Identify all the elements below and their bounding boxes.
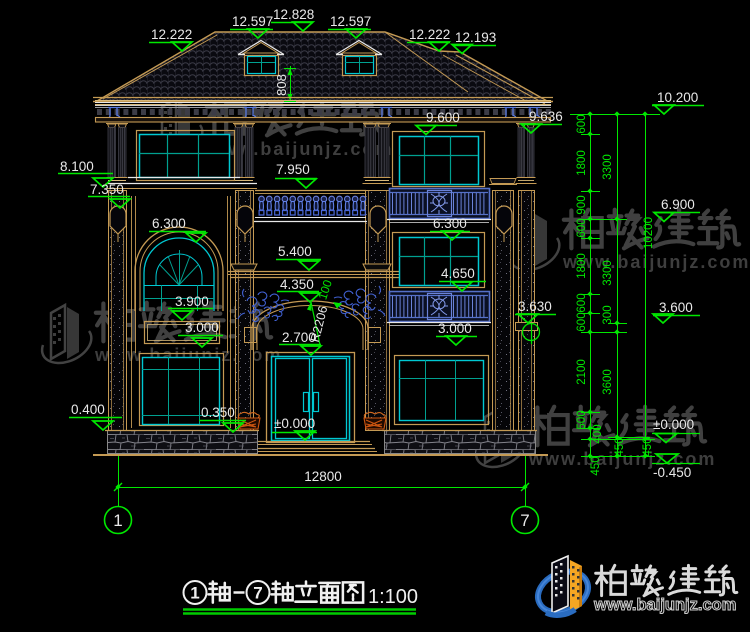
svg-text:3.000: 3.000: [185, 320, 219, 335]
svg-text:600: 600: [576, 293, 588, 312]
svg-text:7.950: 7.950: [276, 162, 310, 177]
svg-text:808: 808: [274, 74, 289, 96]
svg-text:3.000: 3.000: [438, 321, 472, 336]
svg-text:2100: 2100: [576, 359, 588, 385]
svg-text:1800: 1800: [576, 150, 588, 176]
svg-text:1800: 1800: [576, 253, 588, 279]
svg-text:±0.000: ±0.000: [274, 416, 315, 431]
svg-text:600: 600: [576, 312, 588, 331]
svg-text:4.650: 4.650: [441, 266, 475, 281]
svg-text:3600: 3600: [602, 369, 614, 395]
svg-text:12.828: 12.828: [273, 7, 314, 22]
svg-text:3.630: 3.630: [518, 299, 552, 314]
svg-text:1: 1: [113, 511, 122, 530]
svg-text:12.222: 12.222: [409, 27, 450, 42]
svg-text:-0.450: -0.450: [653, 465, 691, 480]
svg-text:5.400: 5.400: [278, 244, 312, 259]
svg-text:www.baijunjz.com: www.baijunjz.com: [593, 596, 736, 614]
svg-text:±0.000: ±0.000: [653, 417, 694, 432]
svg-text:12.597: 12.597: [232, 14, 273, 29]
svg-text:300: 300: [602, 305, 614, 324]
svg-text:3300: 3300: [602, 154, 614, 180]
svg-text:1:100: 1:100: [368, 586, 418, 608]
svg-text:450: 450: [614, 437, 626, 456]
svg-text:8.100: 8.100: [60, 159, 94, 174]
svg-text:12.222: 12.222: [151, 27, 192, 42]
svg-text:600: 600: [576, 218, 588, 237]
svg-text:3300: 3300: [602, 260, 614, 286]
svg-text:450: 450: [642, 437, 654, 456]
svg-text:500: 500: [576, 410, 588, 429]
svg-text:10200: 10200: [643, 217, 655, 249]
svg-text:0.400: 0.400: [71, 402, 105, 417]
svg-text:7: 7: [253, 584, 262, 603]
svg-text:12.597: 12.597: [330, 14, 371, 29]
svg-text:4.350: 4.350: [280, 277, 314, 292]
svg-text:9.636: 9.636: [529, 109, 563, 124]
svg-text:7.350: 7.350: [90, 182, 124, 197]
svg-text:7: 7: [520, 511, 529, 530]
svg-text:12.193: 12.193: [455, 30, 496, 45]
svg-text:6.300: 6.300: [152, 216, 186, 231]
svg-text:3.600: 3.600: [659, 300, 693, 315]
svg-text:10.200: 10.200: [657, 90, 698, 105]
svg-text:0.350: 0.350: [201, 405, 235, 420]
svg-text:1: 1: [190, 584, 199, 603]
svg-text:3.900: 3.900: [175, 294, 209, 309]
svg-text:400: 400: [592, 424, 604, 443]
svg-text:2.700: 2.700: [282, 330, 316, 345]
svg-text:900: 900: [576, 195, 588, 214]
svg-text:450: 450: [590, 456, 602, 475]
svg-text:600: 600: [576, 114, 588, 133]
svg-text:12800: 12800: [304, 469, 342, 484]
svg-text:6.900: 6.900: [661, 197, 695, 212]
svg-text:6.300: 6.300: [433, 216, 467, 231]
svg-text:9.600: 9.600: [426, 110, 460, 125]
